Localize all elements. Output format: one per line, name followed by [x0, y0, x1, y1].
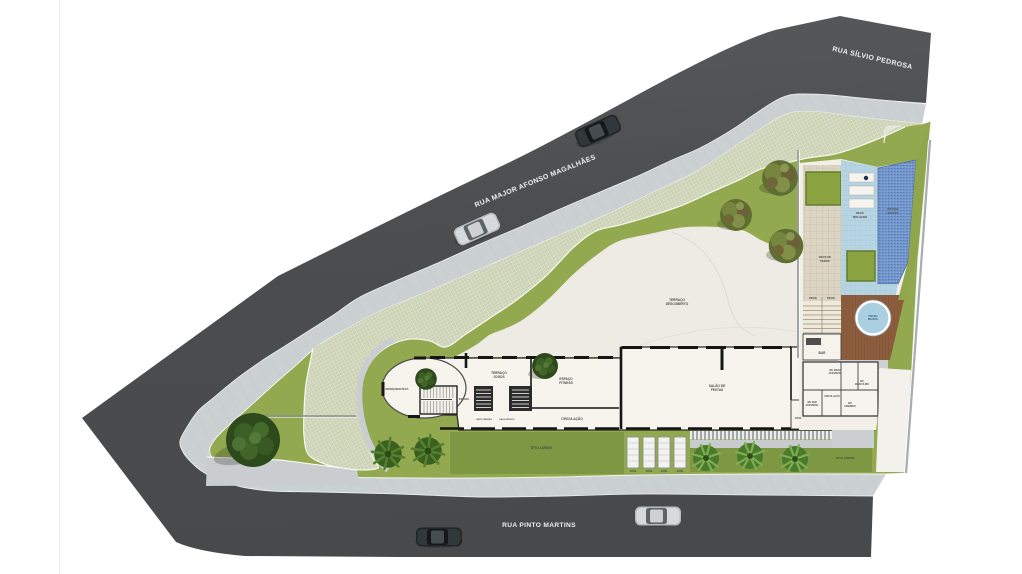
- svg-text:DESCE: DESCE: [827, 298, 835, 300]
- svg-text:PEDRA: PEDRA: [820, 259, 830, 263]
- svg-text:WC MASC: WC MASC: [829, 369, 841, 372]
- svg-text:PISCINA: PISCINA: [868, 315, 878, 318]
- svg-text:ACESSÍVEL: ACESSÍVEL: [828, 372, 842, 375]
- svg-text:ESCADA: ESCADA: [459, 398, 469, 401]
- svg-text:SOBE: SOBE: [661, 471, 668, 473]
- svg-text:DESCE: DESCE: [809, 298, 817, 300]
- svg-text:ACESSÍVEL: ACESSÍVEL: [805, 404, 819, 407]
- svg-text:TETO JARDIM: TETO JARDIM: [836, 456, 856, 460]
- svg-text:WC: WC: [848, 403, 852, 405]
- svg-text:MOLHADO: MOLHADO: [853, 215, 868, 219]
- svg-text:BAR: BAR: [819, 351, 827, 355]
- svg-text:JOGOS: JOGOS: [493, 375, 504, 379]
- svg-text:SOBE: SOBE: [677, 471, 684, 473]
- svg-text:ADULTO: ADULTO: [887, 211, 899, 215]
- svg-text:DESCOBERTO: DESCOBERTO: [666, 302, 689, 306]
- svg-text:SOBE: SOBE: [646, 471, 653, 473]
- svg-text:BRINQUEDOTECA: BRINQUEDOTECA: [386, 387, 409, 391]
- svg-text:WC: WC: [860, 381, 864, 383]
- svg-text:CIRCULAÇÃO: CIRCULAÇÃO: [561, 416, 583, 421]
- svg-text:MASCULINO: MASCULINO: [855, 383, 869, 386]
- svg-text:SALA SERVIÇO: SALA SERVIÇO: [499, 418, 515, 421]
- svg-text:COPA: COPA: [795, 417, 802, 420]
- svg-text:FITNESS: FITNESS: [559, 381, 572, 385]
- svg-text:ANTE CÂMARA: ANTE CÂMARA: [476, 418, 492, 421]
- svg-text:FEMININO: FEMININO: [844, 406, 855, 408]
- svg-text:SOBE: SOBE: [630, 471, 637, 473]
- svg-text:RUA PINTO MARTINS: RUA PINTO MARTINS: [502, 522, 576, 529]
- svg-text:FESTAS: FESTAS: [711, 388, 723, 392]
- svg-text:CIRCULAÇÃO: CIRCULAÇÃO: [824, 395, 840, 398]
- svg-text:INFANTIL: INFANTIL: [868, 318, 879, 321]
- svg-text:TETO JARDIM: TETO JARDIM: [530, 446, 552, 450]
- svg-text:WC FEM: WC FEM: [807, 402, 816, 404]
